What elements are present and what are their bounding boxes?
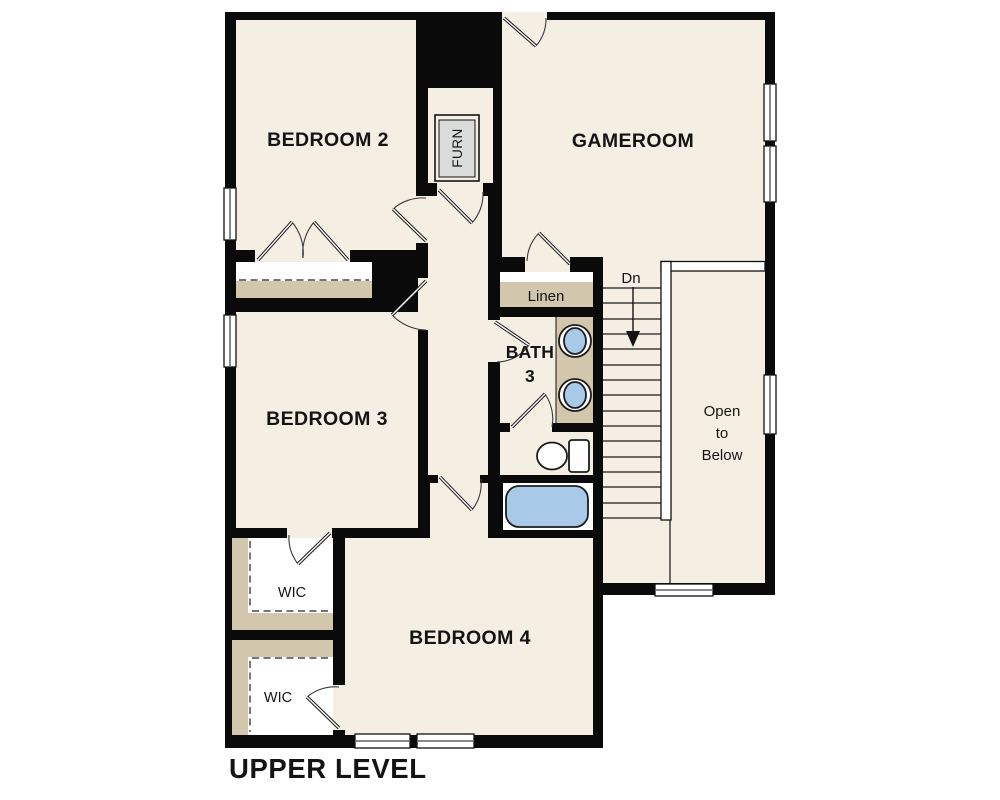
- vanity-sink-2: [559, 379, 591, 411]
- window-gameroom-right-2: [764, 146, 776, 202]
- floor-plan-drawing: BEDROOM 2 GAMEROOM BEDROOM 3 BEDROOM 4 B…: [0, 0, 1000, 800]
- open-to-below-line1: Open: [704, 403, 741, 420]
- bath3-label-line1: BATH: [506, 342, 555, 362]
- bath3-door-opening: [488, 320, 500, 362]
- railing-side: [661, 262, 671, 521]
- linen-label: Linen: [528, 288, 565, 305]
- floor-plan-page: BEDROOM 2 GAMEROOM BEDROOM 3 BEDROOM 4 B…: [0, 0, 1000, 800]
- bedroom4-entry-nook: [430, 483, 488, 538]
- wic-upper-shelf-left: [232, 538, 248, 613]
- window-stair-hall-bottom: [655, 584, 713, 596]
- furnace-label: FURN: [450, 128, 465, 168]
- stair-hall-floor: [603, 257, 765, 583]
- gameroom-top-door-opening: [502, 12, 547, 20]
- window-bedroom3-left: [224, 315, 236, 367]
- window-bedroom4-bottom-2: [417, 734, 474, 748]
- hallway-floor: [428, 196, 488, 475]
- gameroom-label: GAMEROOM: [572, 130, 694, 152]
- bedroom3-label: BEDROOM 3: [266, 408, 388, 430]
- wic-lower-shelf-left: [232, 657, 248, 735]
- bedroom4-label: BEDROOM 4: [409, 627, 531, 649]
- railing-top: [661, 262, 765, 272]
- bathtub: [506, 486, 588, 527]
- window-bedroom4-bottom-1: [355, 734, 410, 748]
- wic-upper-shelf-bottom: [232, 613, 333, 630]
- window-bedroom2-left: [224, 188, 236, 240]
- bath3-label-line2: 3: [525, 366, 535, 386]
- window-gameroom-right-1: [764, 84, 776, 141]
- wic-lower-label: WIC: [264, 690, 292, 706]
- linen-floor: [500, 272, 593, 282]
- open-to-below-line3: Below: [702, 447, 743, 464]
- page-title: UPPER LEVEL: [229, 753, 427, 784]
- window-open-below-right: [764, 375, 776, 434]
- bedroom2-closet-floor: [236, 262, 372, 281]
- bedroom2-label: BEDROOM 2: [267, 129, 389, 151]
- bedroom2-closet-shelf: [236, 281, 372, 298]
- vanity-sink-1: [559, 325, 591, 357]
- wic-lower-shelf-top: [232, 640, 333, 657]
- open-to-below-line2: to: [716, 425, 729, 442]
- wic-upper-label: WIC: [278, 585, 306, 601]
- stairs-down-label: Dn: [621, 270, 640, 287]
